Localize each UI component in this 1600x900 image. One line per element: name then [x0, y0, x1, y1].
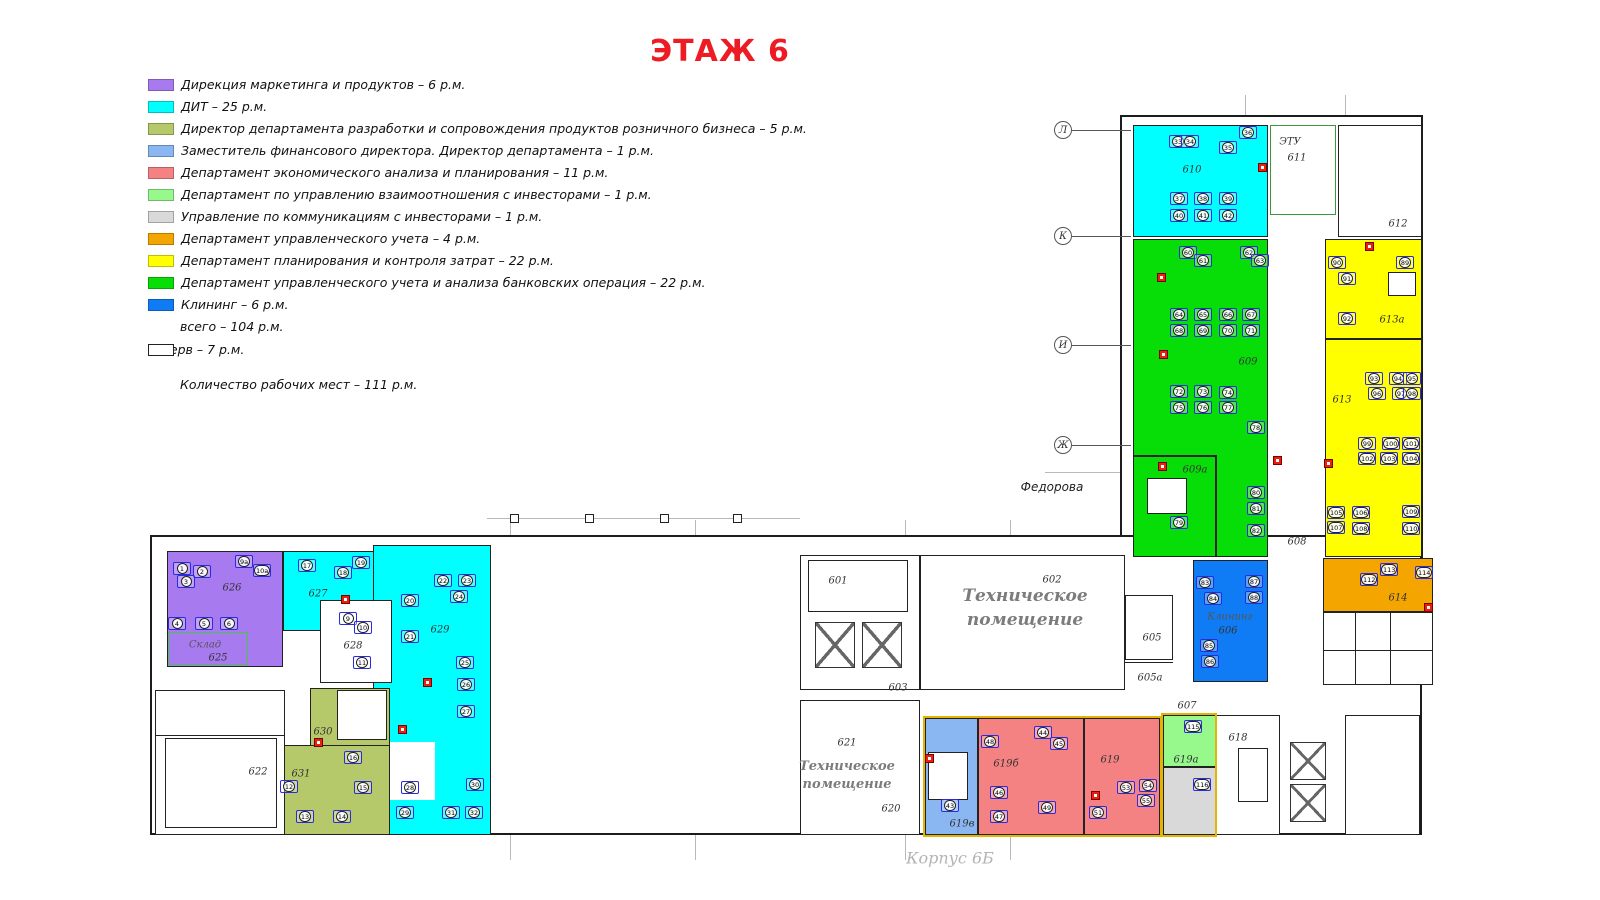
desk-32: 32	[465, 806, 483, 819]
desk-38: 38	[1194, 192, 1212, 205]
desk-116: 116	[1193, 778, 1211, 791]
desk-number: 53	[1120, 782, 1132, 793]
desk-76: 76	[1194, 401, 1212, 414]
plan-label: 605а	[1137, 673, 1162, 684]
desk-86: 86	[1201, 655, 1219, 668]
desk-number: 61	[1197, 255, 1209, 266]
desk-100: 100	[1382, 437, 1400, 450]
plan-label: 619в	[950, 819, 975, 830]
desk-number: 80	[1250, 487, 1262, 498]
desk-number: 15	[357, 782, 369, 793]
fire-extinguisher-icon	[1159, 350, 1168, 359]
desk-number: 74	[1222, 387, 1234, 398]
plan-label: 631	[291, 769, 310, 780]
desk-73: 73	[1194, 385, 1212, 398]
desk-number: 32	[468, 807, 480, 818]
floor-plan: 1234569а10а17181991011202122232425262728…	[0, 0, 1600, 900]
desk-4: 4	[168, 617, 186, 630]
grid-axis-line	[1072, 345, 1131, 346]
fire-extinguisher-icon	[398, 725, 407, 734]
room-605	[1125, 595, 1173, 660]
desk-81: 81	[1247, 502, 1265, 515]
desk-14: 14	[333, 810, 351, 823]
desk-number: 72	[1173, 386, 1185, 397]
fire-extinguisher-icon	[314, 738, 323, 747]
desk-number: 6	[224, 618, 235, 629]
plan-label: 618	[1228, 733, 1247, 744]
desk-number: 88	[1248, 592, 1260, 603]
desk-number: 92	[1341, 313, 1353, 324]
plan-label: 622	[248, 767, 267, 778]
desk-115: 115	[1184, 720, 1202, 733]
meeting-table	[1147, 478, 1187, 514]
desk-number: 22	[437, 575, 449, 586]
desk-102: 102	[1358, 452, 1376, 465]
desk-80: 80	[1247, 486, 1265, 499]
desk-39: 39	[1219, 192, 1237, 205]
desk-number: 100	[1383, 438, 1399, 449]
fire-extinguisher-icon	[1091, 791, 1100, 800]
desk-number: 9а	[238, 556, 250, 567]
wall-segment	[1133, 455, 1217, 457]
desk-68: 68	[1170, 324, 1188, 337]
meeting-table	[1238, 748, 1268, 802]
desk-number: 115	[1185, 721, 1201, 732]
elevator-shaft	[1290, 742, 1326, 780]
desk-number: 98	[1406, 388, 1418, 399]
room-622-stairs	[165, 738, 277, 828]
plan-label: 609	[1238, 357, 1257, 368]
desk-54: 54	[1139, 779, 1157, 792]
desk-number: 43	[944, 800, 956, 811]
desk-20: 20	[401, 594, 419, 607]
grid-axis-line	[1072, 236, 1131, 237]
plan-label: 610	[1182, 165, 1201, 176]
plan-label: 611	[1287, 153, 1306, 164]
desk-99: 99	[1358, 437, 1376, 450]
desk-number: 82	[1250, 525, 1262, 536]
desk-number: 69	[1197, 325, 1209, 336]
desk-43: 43	[941, 799, 959, 812]
desk-number: 54	[1142, 780, 1154, 791]
desk-109: 109	[1402, 505, 1420, 518]
desk-number: 41	[1197, 210, 1209, 221]
desk-79: 79	[1170, 516, 1188, 529]
desk-number: 68	[1173, 325, 1185, 336]
desk-28: 28	[401, 781, 419, 794]
desk-number: 96	[1371, 388, 1383, 399]
desk-number: 99	[1361, 438, 1373, 449]
desk-71: 71	[1242, 324, 1260, 337]
desk-number: 35	[1222, 142, 1234, 153]
desk-3: 3	[177, 575, 195, 588]
elevator-shaft	[862, 622, 902, 668]
desk-88: 88	[1245, 591, 1263, 604]
grid-axis-line	[1072, 445, 1131, 446]
desk-78: 78	[1247, 421, 1265, 434]
plan-label: 629	[430, 625, 449, 636]
grid-axis-label: Л	[1054, 121, 1072, 139]
fire-extinguisher-icon	[1157, 273, 1166, 282]
desk-number: 10а	[254, 565, 270, 576]
desk-46: 46	[990, 786, 1008, 799]
desk-63: 63	[1251, 254, 1269, 267]
meeting-table	[1388, 272, 1416, 296]
desk-number: 4	[172, 618, 183, 629]
desk-number: 81	[1250, 503, 1262, 514]
desk-number: 18	[337, 567, 349, 578]
desk-number: 104	[1403, 453, 1419, 464]
desk-number: 93	[1368, 373, 1380, 384]
desk-113: 113	[1380, 563, 1398, 576]
room-601-stairs	[808, 560, 908, 612]
desk-29: 29	[396, 806, 414, 819]
plan-label: Корпус 6Б	[906, 849, 994, 868]
column-marker	[733, 514, 742, 523]
desk-number: 5	[199, 618, 210, 629]
desk-number: 51	[1092, 807, 1104, 818]
desk-48: 48	[981, 735, 999, 748]
fire-extinguisher-icon	[423, 678, 432, 687]
elevator-shaft	[815, 622, 855, 668]
desk-number: 14	[336, 811, 348, 822]
plan-label: Техническое помещение	[950, 585, 1100, 633]
desk-number: 116	[1194, 779, 1210, 790]
grid-line	[1045, 472, 1125, 473]
plan-label: 620	[881, 804, 900, 815]
desk-number: 77	[1222, 402, 1234, 413]
desk-112: 112	[1360, 573, 1378, 586]
fire-extinguisher-icon	[1324, 459, 1333, 468]
desk-number: 86	[1204, 656, 1216, 667]
plan-label: 609а	[1182, 465, 1207, 476]
plan-label: 606	[1218, 626, 1237, 637]
desk-84: 84	[1204, 592, 1222, 605]
plan-label: 613а	[1379, 315, 1404, 326]
desk-15: 15	[354, 781, 372, 794]
desk-69: 69	[1194, 324, 1212, 337]
fire-extinguisher-icon	[341, 595, 350, 604]
desk-number: 66	[1222, 309, 1234, 320]
desk-number: 40	[1173, 210, 1185, 221]
desk-number: 29	[399, 807, 411, 818]
desk-93: 93	[1365, 372, 1383, 385]
desk-number: 102	[1359, 453, 1375, 464]
desk-number: 110	[1403, 523, 1419, 534]
desk-104: 104	[1402, 452, 1420, 465]
desk-number: 37	[1173, 193, 1185, 204]
desk-number: 28	[404, 782, 416, 793]
desk-89: 89	[1396, 256, 1414, 269]
desk-number: 107	[1328, 522, 1344, 533]
plan-label: Техническое помещение	[797, 758, 897, 793]
desk-49: 49	[1038, 801, 1056, 814]
desk-34: 34	[1181, 135, 1199, 148]
wall-segment	[1125, 662, 1173, 663]
room-612	[1338, 125, 1422, 237]
desk-number: 16	[347, 752, 359, 763]
desk-number: 17	[301, 560, 313, 571]
desk-number: 24	[453, 591, 465, 602]
wall-segment	[1215, 455, 1217, 557]
plan-label: 614	[1388, 593, 1407, 604]
desk-number: 45	[1053, 738, 1065, 749]
elevator-shaft	[1290, 784, 1326, 822]
desk-75: 75	[1170, 401, 1188, 414]
fire-extinguisher-icon	[1424, 603, 1433, 612]
plan-label: 602	[1042, 575, 1061, 586]
desk-number: 83	[1199, 577, 1211, 588]
desk-number: 89	[1399, 257, 1411, 268]
desk-number: 2	[197, 566, 208, 577]
desk-87: 87	[1245, 575, 1263, 588]
desk-number: 20	[404, 595, 416, 606]
desk-number: 38	[1197, 193, 1209, 204]
plan-label: Федорова	[1021, 480, 1084, 494]
plan-label: 627	[308, 589, 327, 600]
desk-number: 10	[357, 622, 369, 633]
desk-65: 65	[1194, 308, 1212, 321]
meeting-table	[337, 690, 387, 740]
desk-number: 71	[1245, 325, 1257, 336]
desk-16: 16	[344, 751, 362, 764]
plan-label: ЭТУ	[1279, 137, 1301, 148]
desk-106: 106	[1352, 506, 1370, 519]
plan-label: 619	[1100, 755, 1119, 766]
plan-label: 613	[1332, 395, 1351, 406]
desk-21: 21	[401, 630, 419, 643]
desk-number: 19	[355, 557, 367, 568]
desk-45: 45	[1050, 737, 1068, 750]
desk-number: 65	[1197, 309, 1209, 320]
desk-number: 27	[460, 706, 472, 717]
desk-90: 90	[1328, 256, 1346, 269]
desk-number: 114	[1416, 567, 1432, 578]
grid-axis-label: К	[1054, 227, 1072, 245]
desk-number: 79	[1173, 517, 1185, 528]
floor-plan-page: ЭТАЖ 6 Дирекция маркетинга и продуктов –…	[0, 0, 1600, 900]
desk-number: 3	[181, 576, 192, 587]
grid-axis-label: И	[1054, 336, 1072, 354]
plan-label: 621	[837, 738, 856, 749]
desk-70: 70	[1219, 324, 1237, 337]
desk-22: 22	[434, 574, 452, 587]
desk-number: 64	[1173, 309, 1185, 320]
fire-extinguisher-icon	[925, 754, 934, 763]
desk-91: 91	[1338, 272, 1356, 285]
desk-number: 34	[1184, 136, 1196, 147]
desk-108: 108	[1352, 522, 1370, 535]
desk-number: 39	[1222, 193, 1234, 204]
desk-17: 17	[298, 559, 316, 572]
desk-27: 27	[457, 705, 475, 718]
wall-segment	[1355, 612, 1356, 685]
desk-number: 13	[299, 811, 311, 822]
column-marker	[510, 514, 519, 523]
desk-number: 49	[1041, 802, 1053, 813]
desk-number: 31	[445, 807, 457, 818]
desk-24: 24	[450, 590, 468, 603]
desk-number: 91	[1341, 273, 1353, 284]
desk-number: 30	[469, 779, 481, 790]
desk-114: 114	[1415, 566, 1433, 579]
plan-label: 601	[828, 576, 847, 587]
fire-extinguisher-icon	[1258, 163, 1267, 172]
desk-11: 11	[353, 656, 371, 669]
plan-label: 619б	[993, 759, 1018, 770]
desk-13: 13	[296, 810, 314, 823]
desk-105: 105	[1327, 506, 1345, 519]
plan-label: 626	[222, 583, 241, 594]
desk-23: 23	[458, 574, 476, 587]
desk-number: 9	[343, 613, 354, 624]
desk-95: 95	[1403, 372, 1421, 385]
grid-axis-label: Ж	[1054, 436, 1072, 454]
desk-number: 26	[460, 679, 472, 690]
plan-label: Склад	[189, 640, 221, 651]
desk-number: 84	[1207, 593, 1219, 604]
desk-37: 37	[1170, 192, 1188, 205]
wall-segment	[155, 735, 285, 736]
plan-label: 607	[1177, 701, 1196, 712]
wall-segment	[1323, 650, 1433, 651]
desk-number: 25	[459, 657, 471, 668]
desk-82: 82	[1247, 524, 1265, 537]
desk-53: 53	[1117, 781, 1135, 794]
desk-number: 87	[1248, 576, 1260, 587]
desk-number: 12	[283, 781, 295, 792]
desk-107: 107	[1327, 521, 1345, 534]
desk-26: 26	[457, 678, 475, 691]
desk-number: 63	[1254, 255, 1266, 266]
grid-axis-line	[1072, 130, 1131, 131]
plan-label: 612	[1388, 219, 1407, 230]
desk-103: 103	[1380, 452, 1398, 465]
desk-number: 73	[1197, 386, 1209, 397]
desk-110: 110	[1402, 522, 1420, 535]
desk-number: 95	[1406, 373, 1418, 384]
desk-66: 66	[1219, 308, 1237, 321]
desk-85: 85	[1200, 639, 1218, 652]
desk-number: 21	[404, 631, 416, 642]
desk-77: 77	[1219, 401, 1237, 414]
desk-101: 101	[1402, 437, 1420, 450]
desk-40: 40	[1170, 209, 1188, 222]
desk-51: 51	[1089, 806, 1107, 819]
desk-1: 1	[173, 562, 191, 575]
plan-label: 619а	[1173, 755, 1198, 766]
desk-number: 70	[1222, 325, 1234, 336]
desk-74: 74	[1219, 386, 1237, 399]
desk-number: 67	[1245, 309, 1257, 320]
fire-extinguisher-icon	[1158, 462, 1167, 471]
desk-number: 108	[1353, 523, 1369, 534]
desk-number: 85	[1203, 640, 1215, 651]
fire-extinguisher-icon	[1273, 456, 1282, 465]
plan-label: 625	[208, 653, 227, 664]
desk-number: 36	[1242, 127, 1254, 138]
desk-10: 10	[354, 621, 372, 634]
desk-55: 55	[1137, 794, 1155, 807]
plan-label: 608	[1287, 537, 1306, 548]
desk-number: 11	[356, 657, 368, 668]
desk-number: 48	[984, 736, 996, 747]
desk-number: 46	[993, 787, 1005, 798]
desk-18: 18	[334, 566, 352, 579]
desk-92: 92	[1338, 312, 1356, 325]
desk-9а: 9а	[235, 555, 253, 568]
desk-96: 96	[1368, 387, 1386, 400]
desk-number: 44	[1037, 727, 1049, 738]
room-wc-614	[1323, 612, 1433, 685]
plan-label: Клининг	[1207, 612, 1252, 623]
room-stairs-east	[1345, 715, 1420, 835]
desk-number: 112	[1361, 574, 1377, 585]
desk-number: 55	[1140, 795, 1152, 806]
desk-10а: 10а	[253, 564, 271, 577]
desk-number: 75	[1173, 402, 1185, 413]
desk-number: 105	[1328, 507, 1344, 518]
desk-number: 90	[1331, 257, 1343, 268]
grid-line	[487, 518, 800, 519]
desk-number: 101	[1403, 438, 1419, 449]
desk-19: 19	[352, 556, 370, 569]
desk-36: 36	[1239, 126, 1257, 139]
desk-61: 61	[1194, 254, 1212, 267]
desk-2: 2	[193, 565, 211, 578]
desk-number: 76	[1197, 402, 1209, 413]
plan-label: 630	[313, 727, 332, 738]
desk-31: 31	[442, 806, 460, 819]
desk-number: 42	[1222, 210, 1234, 221]
fire-extinguisher-icon	[1365, 242, 1374, 251]
desk-25: 25	[456, 656, 474, 669]
plan-label: 603	[888, 683, 907, 694]
desk-35: 35	[1219, 141, 1237, 154]
desk-42: 42	[1219, 209, 1237, 222]
wall-segment	[1390, 612, 1391, 685]
desk-number: 78	[1250, 422, 1262, 433]
column-marker	[660, 514, 669, 523]
desk-number: 106	[1353, 507, 1369, 518]
desk-47: 47	[990, 810, 1008, 823]
desk-number: 23	[461, 575, 473, 586]
desk-98: 98	[1403, 387, 1421, 400]
desk-number: 109	[1403, 506, 1419, 517]
desk-number: 103	[1381, 453, 1397, 464]
desk-72: 72	[1170, 385, 1188, 398]
desk-12: 12	[280, 780, 298, 793]
plan-label: 628	[343, 641, 362, 652]
desk-30: 30	[466, 778, 484, 791]
desk-41: 41	[1194, 209, 1212, 222]
desk-number: 60	[1182, 247, 1194, 258]
desk-number: 113	[1381, 564, 1397, 575]
desk-64: 64	[1170, 308, 1188, 321]
column-marker	[585, 514, 594, 523]
meeting-table	[928, 752, 968, 800]
desk-67: 67	[1242, 308, 1260, 321]
desk-number: 47	[993, 811, 1005, 822]
desk-number: 1	[177, 563, 188, 574]
desk-83: 83	[1196, 576, 1214, 589]
plan-label: 605	[1142, 633, 1161, 644]
desk-6: 6	[220, 617, 238, 630]
desk-5: 5	[195, 617, 213, 630]
